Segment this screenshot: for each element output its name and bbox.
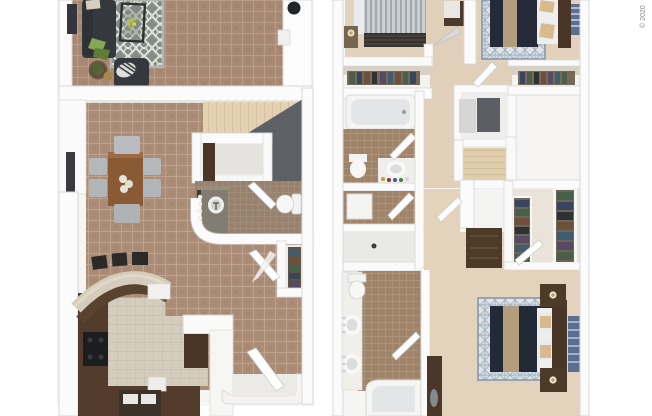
svg-text:© 2020: © 2020 <box>639 5 647 28</box>
